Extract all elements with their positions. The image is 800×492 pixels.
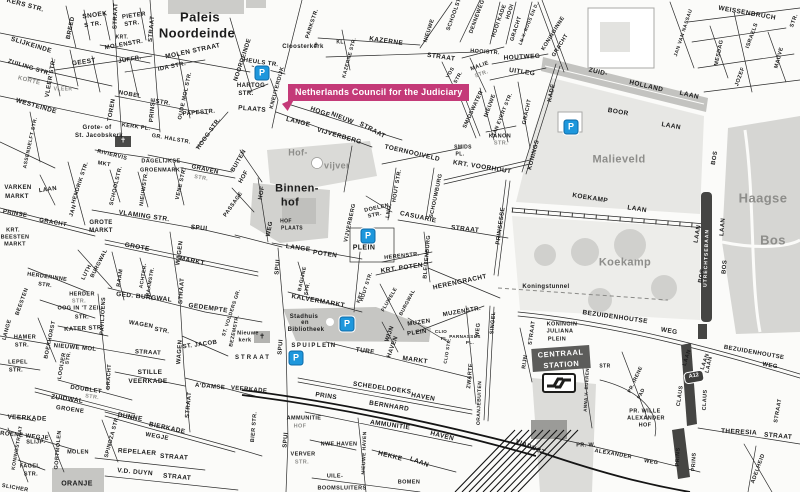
street-label: PRINS bbox=[315, 392, 338, 401]
street-label: STR. bbox=[9, 368, 23, 374]
street-label: GEDEMPTE bbox=[188, 303, 228, 315]
street-label: St. Jacobskerk bbox=[75, 133, 123, 139]
street-label: Bibliotheek bbox=[288, 327, 325, 333]
street-label: ZWARTE bbox=[467, 363, 475, 389]
street-label: PRINS bbox=[692, 452, 698, 471]
street-label: STR. bbox=[38, 282, 53, 289]
street-label: MARKT bbox=[5, 194, 29, 200]
street-label: SPUIPLEIN bbox=[291, 343, 336, 349]
street-label: STR. bbox=[304, 282, 312, 296]
street-label: HOOG STR. bbox=[196, 117, 222, 151]
street-label: Malieveld bbox=[592, 155, 645, 166]
church-icon: ✝ bbox=[313, 43, 319, 50]
street-label: SLIJKEINDE bbox=[10, 37, 52, 56]
street-label: STR. bbox=[154, 327, 170, 336]
street-label: PLEIN bbox=[353, 245, 376, 252]
city-map: KERS STR.SNOEKS TR.PIETERSTR.STRAATPalei… bbox=[0, 0, 800, 492]
street-label: TOERNOOIVELD bbox=[384, 144, 441, 163]
street-label: WEG bbox=[643, 459, 658, 467]
street-label: SPUI bbox=[277, 339, 284, 355]
street-label: MARKT bbox=[4, 242, 26, 248]
street-label: kerk bbox=[239, 338, 252, 344]
street-label: ZUILING STR. bbox=[7, 59, 51, 78]
street-label: STR. bbox=[238, 91, 253, 97]
street-label: LAAN bbox=[705, 356, 714, 374]
street-label: LAAN bbox=[627, 205, 647, 214]
street-label: Haagse bbox=[739, 192, 788, 205]
street-label: BEESTEN bbox=[1, 235, 30, 241]
church-icon: ✝ bbox=[120, 138, 126, 145]
street-label: THERESIA bbox=[721, 429, 757, 437]
street-label: HENDRIK STR. bbox=[72, 161, 91, 204]
street-label: STR. bbox=[368, 212, 383, 220]
street-label: MARKT bbox=[402, 356, 428, 366]
street-label: UTRECHTSEBAAN bbox=[703, 229, 710, 287]
street-label: KOEKAMP bbox=[572, 193, 609, 205]
street-label: VEERKADE bbox=[128, 379, 167, 386]
parking-icon: P bbox=[340, 317, 355, 332]
street-label: HERDER bbox=[69, 292, 95, 298]
street-label: GED. BURGWAL bbox=[116, 292, 172, 304]
parking-icon: P bbox=[255, 66, 270, 81]
street-label: PRINSE bbox=[149, 97, 157, 122]
street-label: LAAN bbox=[693, 224, 702, 243]
street-label: ORANJE bbox=[61, 481, 93, 488]
street-label: HOF bbox=[238, 169, 250, 184]
street-label: MOLEN STRAAT bbox=[165, 43, 221, 61]
street-label: VARKEN bbox=[4, 185, 31, 191]
street-label: LNG. bbox=[386, 203, 394, 218]
street-label: CLAUS bbox=[677, 385, 685, 407]
street-label: TOREN bbox=[107, 98, 117, 122]
street-label: PAD bbox=[637, 388, 646, 400]
street-label: VIJVERBERG bbox=[316, 128, 362, 147]
street-label: STRAAT bbox=[163, 474, 192, 483]
street-label: IDA STR. bbox=[157, 61, 186, 73]
street-label: PARKSTR. bbox=[306, 8, 321, 39]
street-label: ZUID- bbox=[588, 68, 608, 79]
street-label: HOOISTR. bbox=[470, 49, 500, 57]
street-label: STRAAT bbox=[178, 278, 186, 305]
street-label: BERNHARD bbox=[369, 401, 410, 414]
street-label: LANGE bbox=[3, 319, 14, 341]
street-label: HEKKE bbox=[377, 451, 403, 463]
street-label: STR. bbox=[15, 343, 29, 349]
street-label: HERENGRACHT bbox=[432, 274, 487, 292]
street-label: hof bbox=[281, 198, 299, 209]
street-label: KONINGIN bbox=[547, 322, 578, 328]
street-label: PAPESTR. bbox=[182, 109, 215, 118]
street-label: GRACHT bbox=[39, 218, 68, 229]
street-label: PRINS bbox=[676, 447, 682, 466]
street-label: PLAATS bbox=[281, 227, 303, 232]
street-label: GRACHT bbox=[107, 364, 114, 390]
street-label: GROENE bbox=[56, 405, 85, 415]
street-label: REPELAER bbox=[118, 448, 157, 457]
street-label: PLEIN bbox=[407, 329, 427, 338]
street-label: PR. W. bbox=[576, 443, 596, 449]
street-label: HARTOG bbox=[237, 83, 265, 89]
street-label: STRAAT bbox=[451, 225, 480, 234]
street-label: BOEKHORST bbox=[44, 320, 57, 359]
street-label: ALEXANDER bbox=[594, 449, 632, 461]
street-label: SLICHER bbox=[1, 484, 28, 492]
street-label: STRAAT bbox=[185, 392, 193, 419]
street-label: GEEST bbox=[72, 58, 97, 68]
street-label: PLAATS bbox=[238, 106, 266, 115]
street-label: NIEUWE bbox=[424, 19, 437, 44]
street-label: WEG bbox=[660, 327, 678, 336]
street-label: STR bbox=[599, 365, 610, 370]
street-label: ANNA V. BUEREN bbox=[584, 368, 591, 412]
street-label: BOS bbox=[711, 150, 719, 165]
street-label: JOZEF bbox=[735, 67, 747, 87]
street-label: HOOI bbox=[492, 22, 503, 39]
street-label: KRT. bbox=[116, 36, 129, 41]
ns-railways-icon bbox=[542, 373, 576, 393]
centraal-station-badge: CENTRAAL STATION bbox=[531, 345, 590, 372]
street-label: SMIDS bbox=[454, 146, 472, 151]
street-label: STRAAT bbox=[135, 349, 162, 356]
street-label: AMMUNITIE bbox=[287, 416, 322, 422]
street-label: STRAAT bbox=[148, 16, 156, 43]
street-label: DAGELIJKSE bbox=[141, 159, 180, 165]
judiciary-callout-label: Netherlands Council for the Judiciary bbox=[295, 87, 462, 97]
street-label: MUZEN bbox=[407, 318, 431, 327]
street-label: KRT. VOORHOUT bbox=[452, 160, 511, 176]
street-label: MARKT bbox=[89, 228, 113, 234]
street-label: NIEUWE MOL bbox=[53, 343, 96, 353]
street-label: KALVERMARKT bbox=[291, 294, 345, 310]
street-label: CLAUS bbox=[703, 389, 710, 410]
street-label: UITLEG bbox=[509, 68, 536, 78]
street-label: WEG bbox=[762, 362, 778, 371]
street-label: STR. bbox=[155, 99, 171, 108]
street-label: HOF bbox=[280, 220, 292, 225]
street-label: KATER STR. bbox=[64, 325, 104, 333]
street-label: ISRAELS bbox=[746, 23, 760, 50]
street-label: GROTE bbox=[89, 220, 112, 226]
street-label: STR. bbox=[72, 299, 86, 305]
street-label: STRAAT bbox=[160, 454, 189, 462]
street-label: PRINSE bbox=[2, 209, 27, 219]
street-label: SCHOOLSTR. bbox=[447, 0, 466, 32]
street-label: HERENSTR. bbox=[384, 252, 420, 261]
street-label: STRAAT bbox=[774, 399, 784, 424]
street-label: KORTE bbox=[17, 75, 41, 86]
street-label: ORANJEBUITEN bbox=[477, 381, 484, 425]
street-label: CLIO bbox=[435, 330, 447, 335]
street-label: STR. bbox=[124, 20, 140, 28]
street-label: LANGE bbox=[285, 244, 310, 254]
street-label: LAAN bbox=[679, 91, 700, 102]
street-label: NIEUWSTR. bbox=[140, 172, 150, 207]
street-label: JUFFR. bbox=[118, 55, 142, 65]
street-label: NOBEL bbox=[118, 90, 142, 100]
street-label: GROTE bbox=[124, 243, 150, 254]
parking-icon: P bbox=[289, 351, 304, 366]
street-label: MAUVE bbox=[775, 47, 786, 70]
street-label: WAGEN bbox=[176, 339, 184, 364]
street-label: PL. bbox=[456, 153, 465, 158]
street-label: MOLEN bbox=[67, 450, 89, 456]
street-label: STR. bbox=[65, 351, 72, 365]
street-label: PRINSESSE bbox=[495, 207, 506, 245]
street-label: NIEUWE bbox=[484, 94, 498, 119]
street-label: TURF bbox=[355, 347, 375, 356]
street-label: BEESTEN bbox=[15, 288, 30, 317]
street-label: RAAM bbox=[117, 269, 125, 288]
street-label: KRT. POTEN bbox=[380, 263, 423, 275]
street-label: STRAAT bbox=[764, 433, 793, 442]
street-label: BREED bbox=[66, 16, 77, 40]
street-label: VIADUCT bbox=[514, 439, 546, 457]
street-label: GORTMOLEN bbox=[55, 430, 64, 470]
street-label: PL. bbox=[466, 341, 474, 346]
street-label: BOOMSLUITERS bbox=[317, 486, 366, 492]
street-label: MKT bbox=[97, 161, 111, 169]
street-label: STR. bbox=[194, 175, 209, 183]
street-label: VERVER bbox=[291, 452, 316, 458]
parking-icon: P bbox=[361, 229, 376, 244]
street-label: BIER STR. bbox=[251, 411, 259, 442]
street-label: PASSAGE bbox=[223, 191, 244, 218]
street-label: en bbox=[301, 320, 309, 326]
street-label: HOUT STR. bbox=[392, 169, 403, 203]
street-label: ALEXANDER bbox=[627, 416, 665, 422]
street-label: KONINGS bbox=[527, 139, 541, 170]
street-label: Bos bbox=[760, 234, 786, 247]
street-label: SCHEDELDOEKS bbox=[352, 382, 411, 397]
street-label: MESDAG bbox=[715, 39, 726, 66]
street-label: ST. JACOB bbox=[182, 340, 217, 351]
street-label: STR. bbox=[474, 70, 489, 80]
street-label: HOF bbox=[639, 423, 652, 429]
street-label: Koningstunnel bbox=[522, 284, 569, 290]
street-label: FAGEL bbox=[20, 464, 40, 470]
street-label: WEGJE bbox=[145, 432, 169, 442]
street-label: VLEER bbox=[54, 88, 73, 93]
street-label: PIETER bbox=[122, 11, 147, 20]
street-label: LAAN bbox=[39, 186, 58, 194]
street-label: KL. bbox=[336, 41, 345, 46]
street-label: MUZENSTR. bbox=[442, 306, 481, 319]
street-label: SCHOOLSTR. bbox=[110, 166, 124, 206]
street-label: VIJVERBERG bbox=[344, 203, 358, 243]
street-label: KAZERNE bbox=[369, 36, 404, 47]
street-label: Hof- bbox=[288, 149, 308, 158]
street-label: Binnen- bbox=[275, 184, 319, 195]
street-label: SLIJP- bbox=[26, 440, 46, 446]
street-label: UILE- bbox=[327, 474, 343, 480]
street-label: STRAAT bbox=[427, 53, 456, 63]
street-label: LANGE bbox=[285, 117, 311, 129]
street-label: VEERKADE bbox=[7, 415, 47, 424]
street-label: S TR. bbox=[84, 21, 102, 29]
street-label: SNOEK bbox=[82, 11, 108, 21]
street-label: STR. bbox=[75, 315, 89, 321]
street-label: HAMER bbox=[14, 335, 36, 341]
street-label: LEPEL bbox=[8, 360, 28, 366]
street-label: OOG IN 'T ZEIL bbox=[57, 306, 102, 312]
street-label: STRAAT bbox=[113, 3, 120, 29]
street-label: JULIANA bbox=[547, 329, 574, 335]
street-label: WESTEINDE bbox=[15, 98, 57, 116]
street-label: BURGWAL bbox=[399, 289, 417, 317]
street-label: LAAN bbox=[719, 218, 727, 237]
street-label: RIJN bbox=[522, 355, 529, 370]
street-label: PLEIN bbox=[548, 337, 566, 343]
street-label: FLUWELE bbox=[381, 287, 399, 313]
street-label: WEG bbox=[266, 221, 275, 237]
street-label: MOLENSTR. bbox=[104, 39, 143, 52]
street-label: PR. WILLE bbox=[629, 409, 660, 415]
street-label: BOOR bbox=[607, 108, 629, 118]
street-label: BOMEN bbox=[398, 480, 420, 486]
street-label: STR. bbox=[295, 460, 309, 466]
street-label: RAAMSTR. bbox=[146, 267, 156, 297]
street-label: BEZUIDENHOUTSE bbox=[723, 345, 784, 362]
street-label: WEISSENBRUCH bbox=[718, 6, 776, 23]
street-label: NWE HAVEN bbox=[321, 442, 358, 448]
street-label: Grote- of bbox=[83, 125, 112, 131]
street-label: CLIO STR. bbox=[444, 338, 453, 364]
street-label: WEG bbox=[476, 323, 483, 338]
street-label: KRT. bbox=[6, 228, 20, 234]
street-label: LAAN bbox=[683, 349, 693, 367]
street-label: HOUTWEG bbox=[503, 54, 540, 62]
street-label: KERS STR. bbox=[6, 0, 45, 14]
street-label: POTEN bbox=[312, 250, 337, 260]
street-label: STR. bbox=[85, 394, 100, 401]
street-label: STILLE bbox=[138, 370, 163, 377]
street-label: SPUI bbox=[282, 432, 289, 448]
street-label: KERK PL. bbox=[121, 123, 150, 132]
street-label: HAVEN bbox=[429, 431, 454, 443]
street-label: STRAAT bbox=[358, 121, 386, 140]
street-label: STR. bbox=[790, 13, 800, 28]
street-label: WAGEN bbox=[128, 320, 153, 330]
street-label: AMMUNITIE bbox=[370, 420, 411, 432]
street-label: JAN VAN NASSAU bbox=[674, 9, 694, 58]
street-label: JAN bbox=[69, 204, 78, 217]
street-label: DENNEWEG bbox=[469, 0, 486, 35]
street-label: NIEUWE HAVEN bbox=[362, 431, 369, 474]
street-label: V.D. DUYN bbox=[117, 468, 153, 478]
street-label: ZUIDWAL bbox=[51, 395, 84, 406]
street-label: Noordeinde bbox=[159, 27, 235, 40]
street-label: HOF bbox=[294, 424, 307, 430]
street-label: Nieuwe bbox=[237, 331, 259, 337]
street-label: Koekamp bbox=[599, 258, 651, 269]
street-label: HAVEN bbox=[410, 393, 435, 404]
street-label: SPUI bbox=[190, 225, 207, 233]
street-label: SCHOUWBURG bbox=[430, 173, 445, 218]
street-label: HOF bbox=[258, 186, 266, 201]
street-label: A'DAMSE bbox=[195, 383, 226, 392]
street-label: Paleis bbox=[180, 11, 220, 24]
street-label: VLAMING STR. bbox=[118, 210, 170, 224]
street-label: STRAAT bbox=[529, 321, 538, 346]
street-label: vijver bbox=[324, 162, 350, 171]
street-label: GR. HALSTR. bbox=[151, 134, 191, 146]
street-label: BLEIJENBURG bbox=[423, 235, 432, 279]
street-label: ASSENDELFT STR. bbox=[23, 117, 39, 169]
judiciary-callout: Netherlands Council for the Judiciary bbox=[288, 84, 469, 101]
street-label: HOGE bbox=[309, 106, 331, 119]
parking-icon: P bbox=[564, 120, 579, 135]
street-label: GRACHT bbox=[523, 99, 534, 126]
street-label: BOS bbox=[721, 260, 728, 275]
street-label: VEERKADE bbox=[231, 385, 268, 394]
street-label: KADE bbox=[547, 83, 557, 102]
street-label: BEZUIDENHOUTSE bbox=[582, 310, 648, 326]
street-label: ADELHEID bbox=[751, 453, 767, 484]
street-label: LN V. ROOS EN D. bbox=[518, 2, 539, 46]
street-label: MARKT bbox=[179, 256, 205, 268]
street-label: NIEUW bbox=[330, 112, 354, 127]
church-icon: ✝ bbox=[259, 334, 265, 341]
street-label: HOLLAND bbox=[628, 80, 663, 94]
street-label: STRAAT bbox=[235, 355, 271, 361]
street-label: STR. bbox=[24, 472, 38, 478]
street-label: STR. bbox=[494, 141, 508, 147]
street-label: LAAN bbox=[661, 122, 681, 132]
street-label: LAAN bbox=[409, 457, 430, 470]
street-label: SINGEL bbox=[490, 311, 497, 334]
map-labels-layer: KERS STR.SNOEKS TR.PIETERSTR.STRAATPalei… bbox=[0, 0, 800, 492]
street-label: SPUI bbox=[274, 259, 281, 275]
